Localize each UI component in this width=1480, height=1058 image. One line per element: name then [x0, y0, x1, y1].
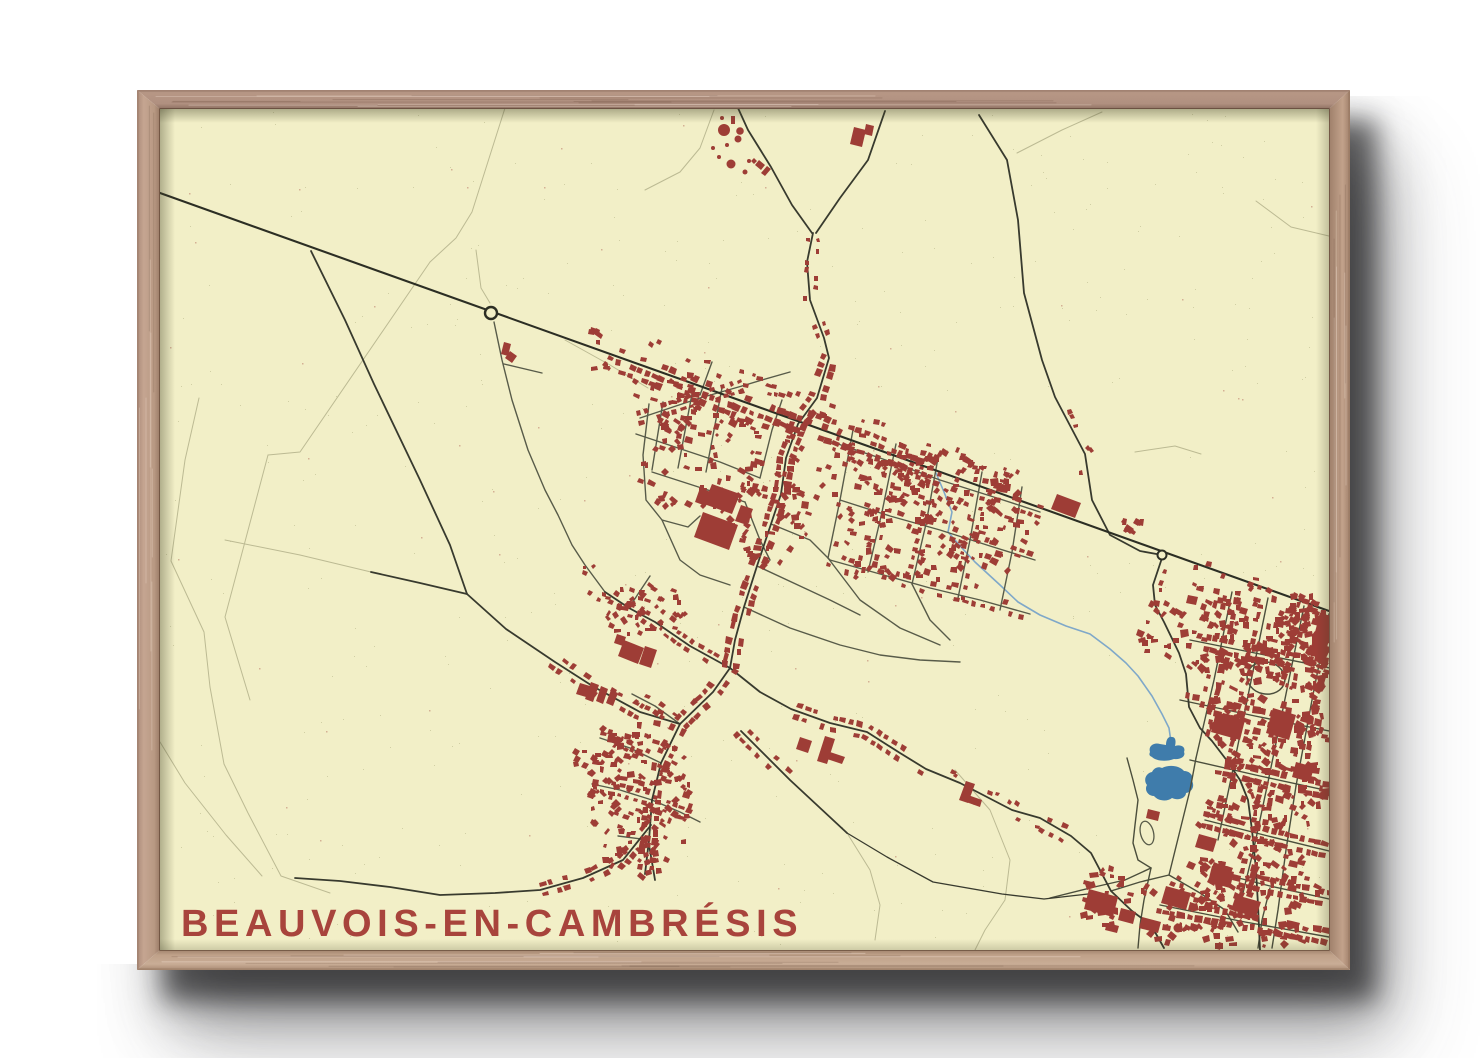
svg-text:BEAUVOIS-EN-CAMBRÉSIS: BEAUVOIS-EN-CAMBRÉSIS [181, 901, 803, 945]
